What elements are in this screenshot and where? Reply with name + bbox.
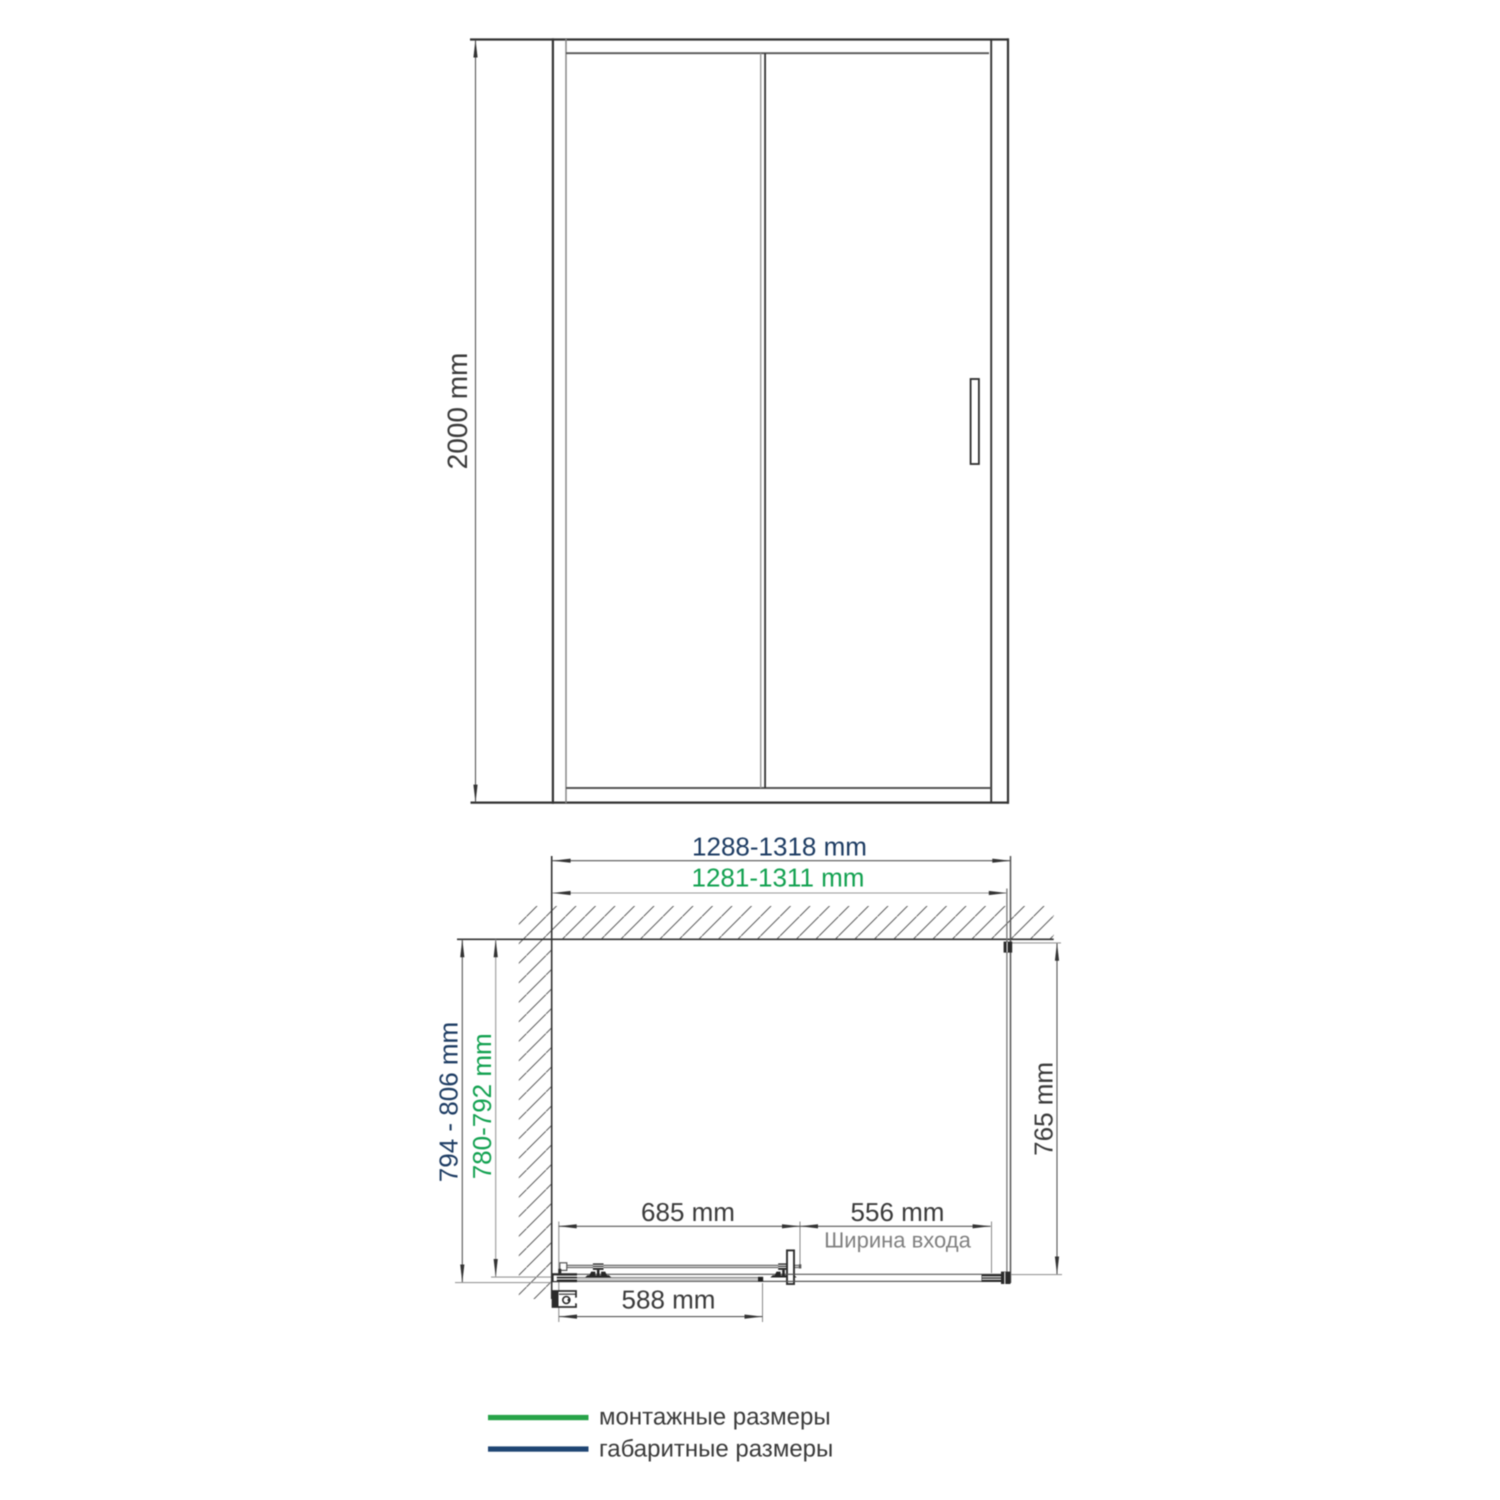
svg-text:Ширина входа: Ширина входа (824, 1228, 972, 1253)
svg-text:685 mm: 685 mm (641, 1197, 735, 1227)
svg-text:2000 mm: 2000 mm (442, 353, 473, 470)
svg-text:794 - 806 mm: 794 - 806 mm (434, 1022, 464, 1182)
svg-text:1288-1318 mm: 1288-1318 mm (692, 832, 867, 862)
svg-text:монтажные размеры: монтажные размеры (599, 1404, 831, 1431)
svg-text:556 mm: 556 mm (851, 1197, 945, 1227)
svg-text:габаритные размеры: габаритные размеры (599, 1435, 833, 1462)
svg-text:765 mm: 765 mm (1029, 1062, 1059, 1156)
svg-text:1281-1311 mm: 1281-1311 mm (692, 863, 865, 893)
svg-text:780-792 mm: 780-792 mm (467, 1033, 497, 1179)
svg-text:588 mm: 588 mm (622, 1285, 716, 1315)
